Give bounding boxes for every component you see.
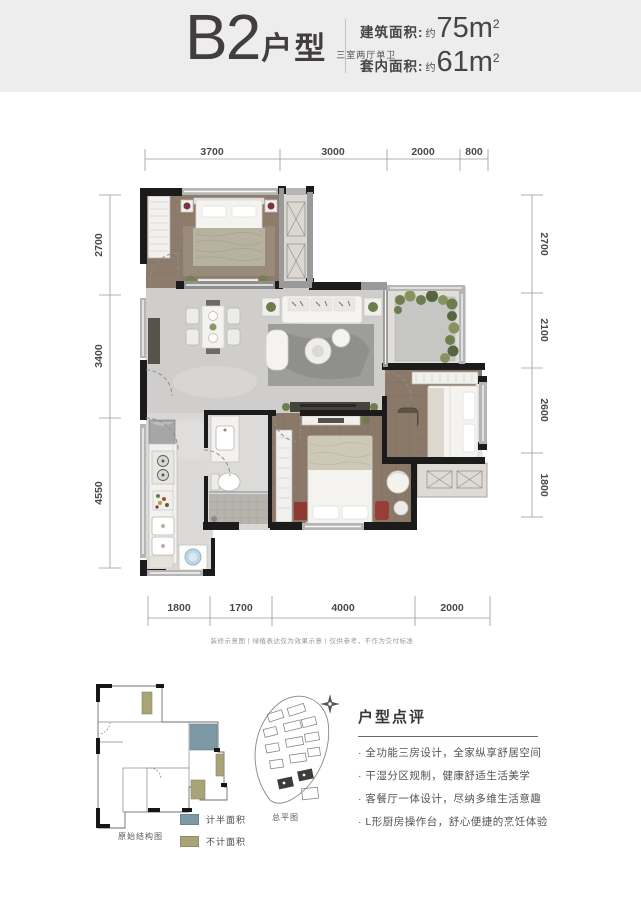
structure-caption: 原始结构图	[118, 831, 163, 842]
toilet	[211, 473, 240, 491]
svg-text:4550: 4550	[93, 481, 105, 505]
siteplan-caption: 总平图	[272, 812, 299, 823]
fridge	[149, 420, 175, 444]
svg-text:3400: 3400	[93, 344, 105, 368]
plan-code: B2	[185, 6, 259, 68]
coffee-table	[332, 329, 350, 347]
svg-text:800: 800	[465, 146, 483, 158]
svg-text:3000: 3000	[321, 146, 345, 158]
round-side-table	[394, 501, 408, 515]
svg-text:2700: 2700	[538, 232, 550, 256]
stove	[152, 451, 174, 484]
red-chair	[375, 501, 389, 520]
round-chair	[387, 471, 409, 493]
excluded-area-swatch	[180, 836, 199, 847]
lounge-chair	[266, 330, 288, 370]
double-bed	[306, 436, 374, 528]
svg-text:2700: 2700	[93, 233, 105, 257]
review-divider	[358, 736, 538, 737]
floorplan-drawing: 3700 3000 2000 800 2700 3400 4550 2700	[0, 130, 641, 650]
tv-cabinet	[148, 318, 160, 364]
disclaimer-text: 装修示意图丨绿植表达仅为效果示意丨仅供参考，不作为交付标准	[211, 636, 414, 645]
review-bullet: · L形厨房操作台，舒心便捷的烹饪体验	[358, 812, 608, 832]
plan-code-suffix: 户型	[261, 32, 327, 66]
floorplan-page: B2 户型 三室两厅单卫 建筑面积:约75m2 套内面积:约61m2 3700 …	[0, 0, 641, 921]
svg-text:4000: 4000	[331, 602, 355, 614]
review-bullet: · 客餐厅一体设计，尽纳多维生活意趣	[358, 789, 608, 809]
washing-machine	[179, 545, 207, 570]
bathroom	[207, 413, 272, 525]
svg-text:1800: 1800	[167, 602, 191, 614]
header-band: B2 户型 三室两厅单卫 建筑面积:约75m2 套内面积:约61m2	[0, 0, 641, 92]
single-bed	[428, 384, 482, 462]
dimension-right: 2700 2100 2600 1800	[521, 195, 550, 517]
wardrobe	[148, 196, 170, 258]
header-divider	[345, 19, 346, 73]
plant	[368, 302, 378, 312]
svg-text:2000: 2000	[411, 146, 435, 158]
review-bullet: · 干湿分区规制，健康舒适生活美学	[358, 766, 608, 786]
plant	[266, 302, 276, 312]
half-area-swatch	[180, 814, 199, 825]
vanity	[211, 416, 239, 462]
master-bedroom	[146, 192, 283, 288]
plant	[362, 416, 370, 424]
svg-text:1700: 1700	[229, 602, 253, 614]
balcony	[417, 463, 487, 497]
site-plan	[240, 688, 345, 810]
review-title: 户型点评	[358, 706, 608, 727]
legend-excluded-area: 不计面积	[180, 834, 246, 848]
kitchen-mat	[149, 556, 173, 568]
double-bed	[193, 198, 265, 266]
red-nightstand	[294, 502, 307, 520]
bedroom-2	[272, 413, 417, 530]
gross-area-row: 建筑面积:约75m2	[360, 12, 500, 46]
net-area-row: 套内面积:约61m2	[360, 46, 500, 80]
svg-text:2000: 2000	[440, 602, 464, 614]
dimension-bottom: 1800 1700 4000 2000	[148, 596, 490, 626]
area-info: 建筑面积:约75m2 套内面积:约61m2	[360, 12, 500, 80]
area-legend: 计半面积 不计面积	[180, 812, 246, 856]
wardrobe	[412, 372, 478, 384]
review-bullet: · 全功能三房设计，全家纵享舒居空间	[358, 743, 608, 763]
sofa	[282, 296, 362, 323]
dimension-top: 3700 3000 2000 800	[145, 146, 488, 171]
review-section: 户型点评 · 全功能三房设计，全家纵享舒居空间 · 干湿分区规制，健康舒适生活美…	[358, 706, 608, 832]
dimension-left: 2700 3400 4550	[93, 195, 121, 568]
svg-text:1800: 1800	[538, 473, 550, 497]
svg-text:2100: 2100	[538, 318, 550, 342]
shower-area	[209, 492, 270, 524]
vegetable-basket	[153, 491, 173, 510]
review-bullets: · 全功能三房设计，全家纵享舒居空间 · 干湿分区规制，健康舒适生活美学 · 客…	[358, 743, 608, 832]
svg-text:2600: 2600	[538, 398, 550, 422]
garden-terrace	[385, 287, 465, 370]
legend-half-area: 计半面积	[180, 812, 246, 826]
svg-text:3700: 3700	[200, 146, 224, 158]
